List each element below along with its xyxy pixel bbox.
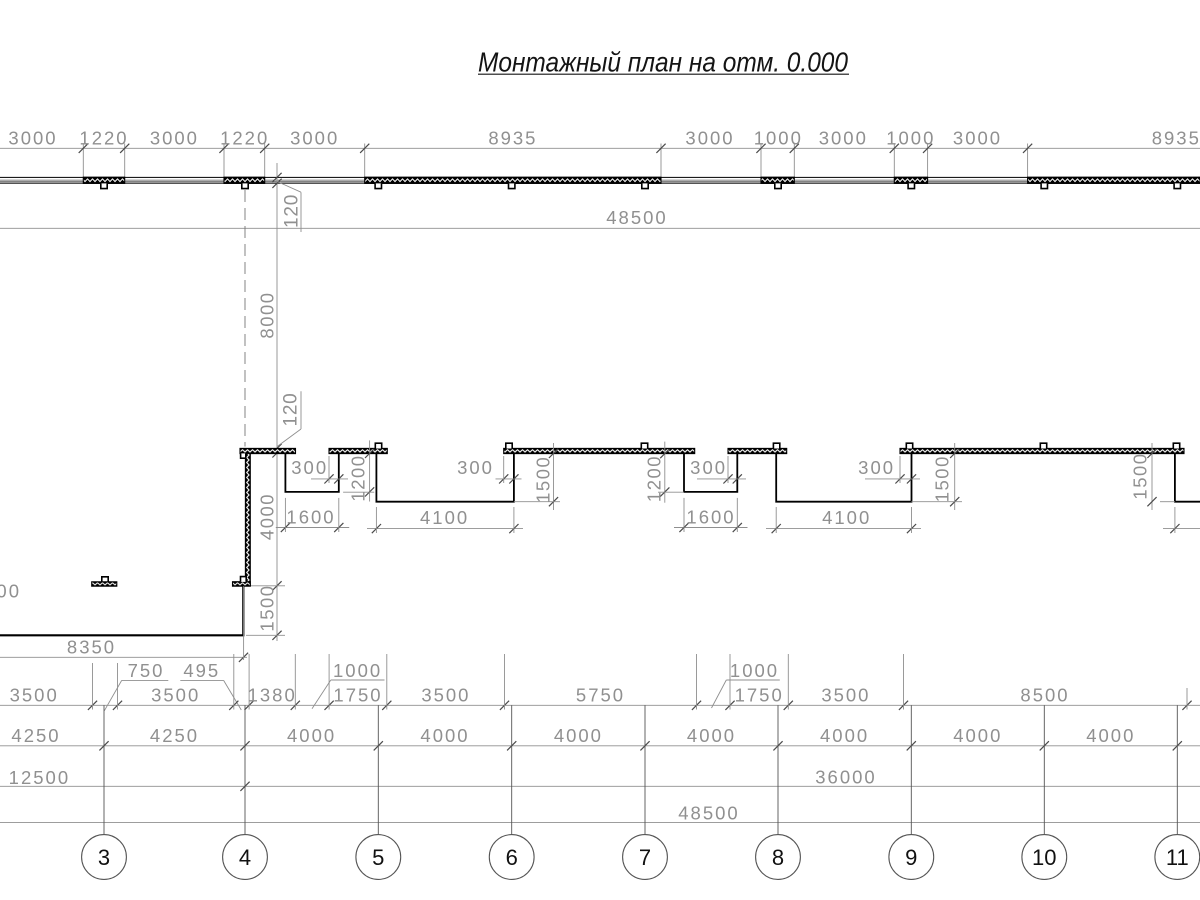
svg-text:1220: 1220 bbox=[79, 128, 128, 149]
svg-text:4000: 4000 bbox=[820, 725, 869, 746]
svg-text:8350: 8350 bbox=[67, 637, 116, 658]
svg-text:8935: 8935 bbox=[1152, 128, 1200, 149]
svg-text:3000: 3000 bbox=[150, 128, 199, 149]
svg-text:1200: 1200 bbox=[348, 454, 369, 501]
svg-text:9: 9 bbox=[905, 845, 917, 870]
svg-text:3500: 3500 bbox=[10, 684, 59, 705]
svg-text:300: 300 bbox=[457, 457, 494, 478]
svg-text:1500: 1500 bbox=[932, 455, 953, 502]
svg-text:4250: 4250 bbox=[11, 725, 60, 746]
svg-text:1500: 1500 bbox=[257, 584, 278, 631]
svg-text:8: 8 bbox=[772, 845, 784, 870]
svg-text:120: 120 bbox=[282, 194, 303, 228]
svg-text:4: 4 bbox=[239, 845, 251, 870]
svg-text:3000: 3000 bbox=[8, 128, 57, 149]
svg-text:4000: 4000 bbox=[554, 725, 603, 746]
svg-text:48500: 48500 bbox=[678, 803, 739, 824]
svg-text:1500: 1500 bbox=[533, 456, 554, 503]
svg-text:3000: 3000 bbox=[953, 128, 1002, 149]
svg-text:Монтажный план на отм. 0.000: Монтажный план на отм. 0.000 bbox=[478, 47, 848, 78]
svg-text:1000: 1000 bbox=[333, 660, 382, 681]
svg-text:4000: 4000 bbox=[953, 725, 1002, 746]
svg-text:5: 5 bbox=[372, 845, 384, 870]
svg-text:36000: 36000 bbox=[815, 767, 876, 788]
svg-text:4000: 4000 bbox=[687, 725, 736, 746]
svg-text:1600: 1600 bbox=[286, 507, 335, 528]
svg-text:1750: 1750 bbox=[333, 684, 382, 705]
svg-text:4100: 4100 bbox=[420, 507, 469, 528]
svg-text:3000: 3000 bbox=[685, 128, 734, 149]
svg-text:5750: 5750 bbox=[576, 684, 625, 705]
svg-text:4250: 4250 bbox=[150, 725, 199, 746]
svg-text:8500: 8500 bbox=[1020, 684, 1069, 705]
svg-text:3000: 3000 bbox=[819, 128, 868, 149]
svg-text:7: 7 bbox=[639, 845, 651, 870]
svg-text:10: 10 bbox=[1032, 845, 1056, 870]
svg-text:1200: 1200 bbox=[644, 455, 665, 502]
svg-text:1000: 1000 bbox=[730, 660, 779, 681]
svg-text:4000: 4000 bbox=[287, 725, 336, 746]
svg-text:3000: 3000 bbox=[0, 581, 21, 602]
svg-text:1220: 1220 bbox=[220, 128, 269, 149]
svg-text:4000: 4000 bbox=[257, 493, 278, 540]
svg-text:12500: 12500 bbox=[9, 767, 70, 788]
svg-text:11: 11 bbox=[1166, 845, 1189, 870]
svg-text:750: 750 bbox=[128, 660, 165, 681]
svg-text:300: 300 bbox=[291, 457, 328, 478]
svg-text:3000: 3000 bbox=[290, 128, 339, 149]
svg-text:3500: 3500 bbox=[421, 684, 470, 705]
svg-text:3: 3 bbox=[98, 845, 110, 870]
svg-text:4000: 4000 bbox=[1086, 725, 1135, 746]
svg-text:3500: 3500 bbox=[821, 684, 870, 705]
svg-text:6: 6 bbox=[506, 845, 518, 870]
svg-text:1000: 1000 bbox=[886, 128, 935, 149]
svg-text:8935: 8935 bbox=[488, 128, 537, 149]
svg-text:495: 495 bbox=[183, 660, 220, 681]
svg-text:3500: 3500 bbox=[151, 684, 200, 705]
svg-text:300: 300 bbox=[690, 457, 727, 478]
svg-text:8000: 8000 bbox=[257, 291, 278, 338]
svg-text:4000: 4000 bbox=[420, 725, 469, 746]
svg-text:1600: 1600 bbox=[686, 507, 735, 528]
svg-text:48500: 48500 bbox=[606, 207, 667, 228]
svg-text:1500: 1500 bbox=[1130, 452, 1151, 499]
svg-text:300: 300 bbox=[858, 457, 895, 478]
svg-text:1380: 1380 bbox=[248, 684, 297, 705]
svg-text:1750: 1750 bbox=[735, 684, 784, 705]
svg-text:1000: 1000 bbox=[754, 128, 803, 149]
svg-text:120: 120 bbox=[281, 392, 302, 426]
svg-text:4100: 4100 bbox=[822, 507, 871, 528]
